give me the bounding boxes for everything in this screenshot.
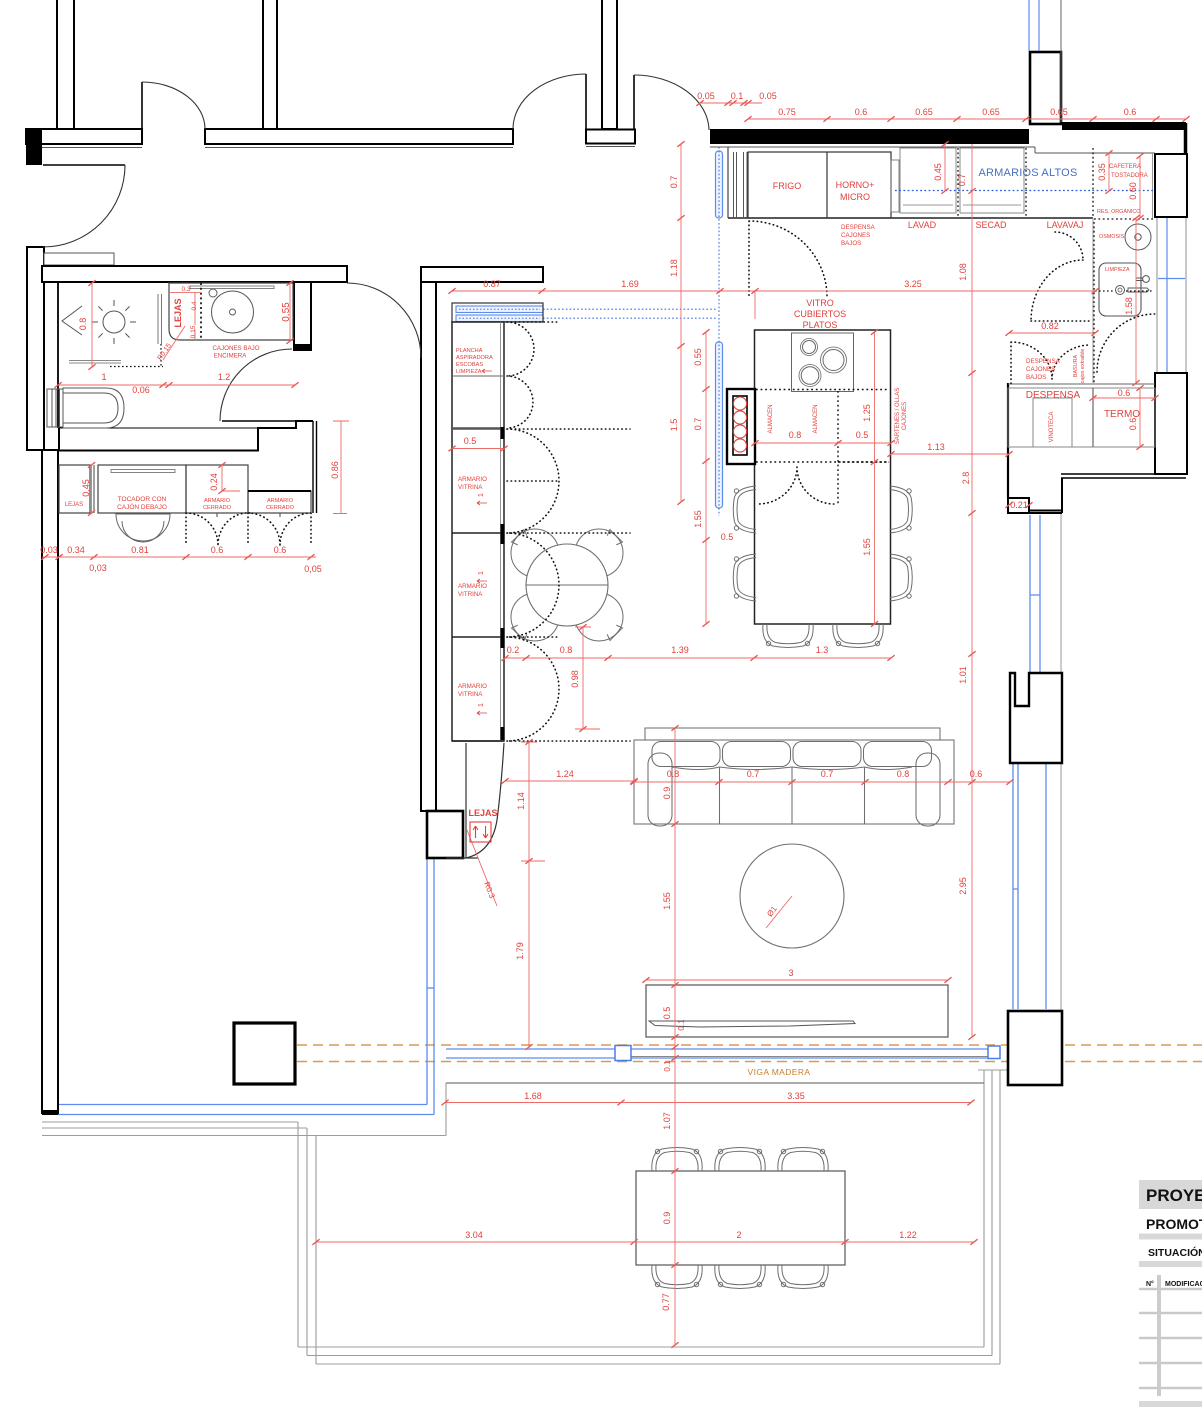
svg-text:0.34: 0.34 (67, 545, 85, 555)
svg-text:1.22: 1.22 (899, 1230, 917, 1240)
svg-text:2: 2 (736, 1230, 741, 1240)
svg-text:0.6: 0.6 (1124, 107, 1137, 117)
svg-text:0.05: 0.05 (759, 91, 777, 101)
svg-text:N°: N° (1146, 1280, 1154, 1288)
svg-text:DESPENSA: DESPENSA (1026, 390, 1081, 401)
svg-text:HORNO+: HORNO+ (836, 180, 875, 190)
svg-text:ARMARIO: ARMARIO (458, 476, 487, 483)
svg-text:CAJONES BAJO: CAJONES BAJO (212, 345, 259, 352)
svg-text:0.8: 0.8 (560, 645, 573, 655)
svg-text:0.35: 0.35 (1097, 163, 1107, 181)
svg-text:DESPENSA: DESPENSA (1026, 358, 1061, 365)
svg-text:CAJONES: CAJONES (1026, 366, 1055, 373)
svg-text:LIMPIEZA: LIMPIEZA (456, 369, 482, 375)
svg-text:0.55: 0.55 (281, 302, 292, 322)
svg-text:VITRINA: VITRINA (458, 691, 483, 698)
svg-text:ARMARIOS ALTOS: ARMARIOS ALTOS (979, 167, 1078, 179)
svg-text:0.5: 0.5 (721, 532, 734, 542)
svg-text:2.8: 2.8 (961, 472, 971, 485)
svg-text:1.69: 1.69 (621, 279, 639, 289)
svg-text:CERRADO: CERRADO (203, 505, 232, 511)
svg-text:cajon extraible: cajon extraible (1080, 349, 1086, 384)
svg-text:0.45: 0.45 (933, 163, 943, 181)
svg-text:BAJOS: BAJOS (841, 240, 861, 247)
svg-text:VIGA MADERA: VIGA MADERA (748, 1067, 811, 1077)
svg-text:CERRADO: CERRADO (266, 505, 295, 511)
svg-text:ASPIRADORA: ASPIRADORA (456, 355, 493, 361)
svg-text:3.25: 3.25 (904, 279, 922, 289)
svg-text:CAFETERA: CAFETERA (1109, 164, 1141, 170)
svg-text:1.58: 1.58 (1124, 297, 1134, 315)
svg-text:CUBIERTOS: CUBIERTOS (794, 309, 846, 319)
svg-text:0.8: 0.8 (667, 769, 680, 779)
svg-text:3.35: 3.35 (787, 1091, 805, 1101)
svg-text:VITRINA: VITRINA (458, 484, 483, 491)
svg-text:1.3: 1.3 (816, 645, 829, 655)
svg-text:0.4: 0.4 (191, 301, 198, 310)
svg-text:0.75: 0.75 (778, 107, 796, 117)
svg-text:MICRO: MICRO (840, 192, 870, 202)
svg-text:0.65: 0.65 (1050, 107, 1068, 117)
svg-text:0.82: 0.82 (1041, 321, 1059, 331)
svg-text:0.6: 0.6 (274, 545, 287, 555)
svg-text:0.1: 0.1 (731, 91, 744, 101)
svg-text:SARTENES / OLLAS: SARTENES / OLLAS (895, 388, 901, 445)
svg-text:ARMARIO: ARMARIO (458, 583, 487, 590)
svg-text:0.6: 0.6 (211, 545, 224, 555)
svg-text:0.8: 0.8 (789, 430, 802, 440)
svg-text:0.1: 0.1 (663, 1060, 672, 1072)
svg-text:0.8: 0.8 (78, 318, 88, 331)
svg-text:1: 1 (478, 493, 485, 497)
svg-text:1.08: 1.08 (958, 263, 968, 281)
svg-text:0.5: 0.5 (662, 1007, 672, 1020)
svg-text:1.13: 1.13 (927, 442, 945, 452)
svg-text:0.98: 0.98 (570, 670, 580, 688)
svg-text:1: 1 (478, 703, 485, 707)
svg-text:ESCOBAS: ESCOBAS (456, 362, 483, 368)
svg-text:0.7: 0.7 (747, 769, 760, 779)
svg-text:0.65: 0.65 (915, 107, 933, 117)
svg-text:OSMOSIS: OSMOSIS (1099, 234, 1125, 240)
svg-text:0.77: 0.77 (661, 1293, 671, 1311)
svg-text:0.9: 0.9 (662, 787, 672, 800)
svg-text:PLANCHA: PLANCHA (456, 348, 483, 354)
svg-text:LAVAVAJ: LAVAVAJ (1047, 220, 1084, 230)
svg-text:0.7: 0.7 (693, 418, 703, 431)
svg-text:ALMACEN: ALMACEN (768, 404, 774, 433)
svg-text:1.01: 1.01 (958, 666, 968, 684)
svg-text:BAJOS: BAJOS (1026, 374, 1046, 381)
svg-text:0.8: 0.8 (897, 769, 910, 779)
svg-text:VITRINA: VITRINA (458, 591, 483, 598)
svg-text:1.07: 1.07 (662, 1112, 672, 1130)
svg-text:CAJÓN DEBAJO: CAJÓN DEBAJO (117, 502, 167, 511)
svg-text:FRIGO: FRIGO (773, 181, 802, 191)
svg-text:2.95: 2.95 (958, 877, 968, 895)
svg-text:1.68: 1.68 (524, 1091, 542, 1101)
svg-text:ARMARIO: ARMARIO (204, 498, 231, 504)
svg-text:RES. ORGÁNICO: RES. ORGÁNICO (1097, 208, 1140, 215)
svg-text:0.5: 0.5 (464, 436, 477, 446)
svg-text:0.2: 0.2 (507, 645, 520, 655)
svg-text:0.6: 0.6 (970, 769, 983, 779)
svg-text:0.7: 0.7 (669, 176, 679, 189)
svg-text:0.87: 0.87 (483, 279, 501, 289)
svg-text:VITRO: VITRO (806, 298, 834, 308)
svg-text:LIMPIEZA: LIMPIEZA (1105, 267, 1130, 273)
svg-text:ARMARIO: ARMARIO (267, 498, 294, 504)
svg-text:ENCIMERA: ENCIMERA (214, 353, 248, 360)
svg-text:0.60: 0.60 (1128, 182, 1138, 200)
svg-text:BASURA: BASURA (1073, 355, 1079, 378)
svg-text:0.7: 0.7 (957, 174, 967, 187)
svg-text:SECAD: SECAD (975, 220, 1007, 230)
svg-text:CAJONES: CAJONES (841, 232, 870, 239)
svg-text:0.9: 0.9 (662, 1212, 672, 1225)
svg-text:0,03: 0,03 (89, 563, 107, 573)
svg-text:0.21: 0.21 (1010, 500, 1028, 510)
svg-text:0.86: 0.86 (330, 461, 340, 479)
svg-text:PROYEC: PROYEC (1146, 1186, 1202, 1205)
svg-text:0.1: 0.1 (677, 1019, 686, 1031)
svg-text:DESPENSA: DESPENSA (841, 224, 876, 231)
svg-text:0.03: 0.03 (40, 545, 58, 555)
svg-text:1.14: 1.14 (516, 792, 526, 810)
svg-text:0.6: 0.6 (1118, 388, 1131, 398)
svg-text:0.24: 0.24 (209, 473, 219, 491)
svg-text:0.65: 0.65 (982, 107, 1000, 117)
svg-text:TOSTADORA: TOSTADORA (1111, 173, 1148, 179)
svg-text:0.6: 0.6 (855, 107, 868, 117)
svg-text:1.5: 1.5 (669, 419, 679, 432)
svg-text:VINOTECA: VINOTECA (1049, 412, 1055, 443)
svg-text:1.39: 1.39 (671, 645, 689, 655)
svg-text:TERMO: TERMO (1104, 409, 1140, 420)
svg-text:PLATOS: PLATOS (803, 320, 838, 330)
svg-text:0.81: 0.81 (131, 545, 149, 555)
svg-text:1.55: 1.55 (662, 892, 672, 910)
svg-text:LEJAS: LEJAS (65, 502, 83, 508)
svg-text:0.45: 0.45 (81, 479, 91, 497)
svg-text:0.7: 0.7 (821, 769, 834, 779)
svg-text:0.3: 0.3 (181, 286, 190, 293)
svg-text:1.55: 1.55 (693, 510, 703, 528)
svg-text:1.79: 1.79 (515, 942, 525, 960)
svg-text:ARMARIO: ARMARIO (458, 683, 487, 690)
svg-text:0.06: 0.06 (132, 385, 150, 395)
svg-text:0,05: 0,05 (304, 564, 322, 574)
svg-text:1.24: 1.24 (556, 769, 574, 779)
svg-text:LAVAD: LAVAD (908, 220, 937, 230)
svg-text:1: 1 (101, 372, 106, 382)
svg-text:LEJAS: LEJAS (468, 808, 497, 818)
svg-text:MODIFICAC: MODIFICAC (1165, 1281, 1202, 1288)
svg-text:LEJAS: LEJAS (173, 298, 183, 327)
svg-text:0.05: 0.05 (697, 91, 715, 101)
svg-text:1.2: 1.2 (218, 372, 231, 382)
svg-text:0.15: 0.15 (190, 325, 197, 338)
svg-text:PROMOTO: PROMOTO (1146, 1216, 1202, 1232)
svg-text:0.5: 0.5 (856, 430, 869, 440)
svg-text:1.55: 1.55 (862, 538, 872, 556)
svg-text:1.25: 1.25 (862, 404, 872, 422)
svg-text:TOCADOR CON: TOCADOR CON (118, 496, 167, 503)
svg-text:3.04: 3.04 (465, 1230, 483, 1240)
svg-text:0.55: 0.55 (693, 348, 703, 366)
svg-text:1.18: 1.18 (669, 259, 679, 277)
svg-text:SITUACIÓN:: SITUACIÓN: (1148, 1246, 1202, 1259)
svg-text:CAJONES: CAJONES (902, 402, 908, 430)
svg-text:1: 1 (478, 571, 485, 575)
svg-text:3: 3 (788, 968, 793, 978)
svg-text:ALMACEN: ALMACEN (813, 404, 819, 433)
